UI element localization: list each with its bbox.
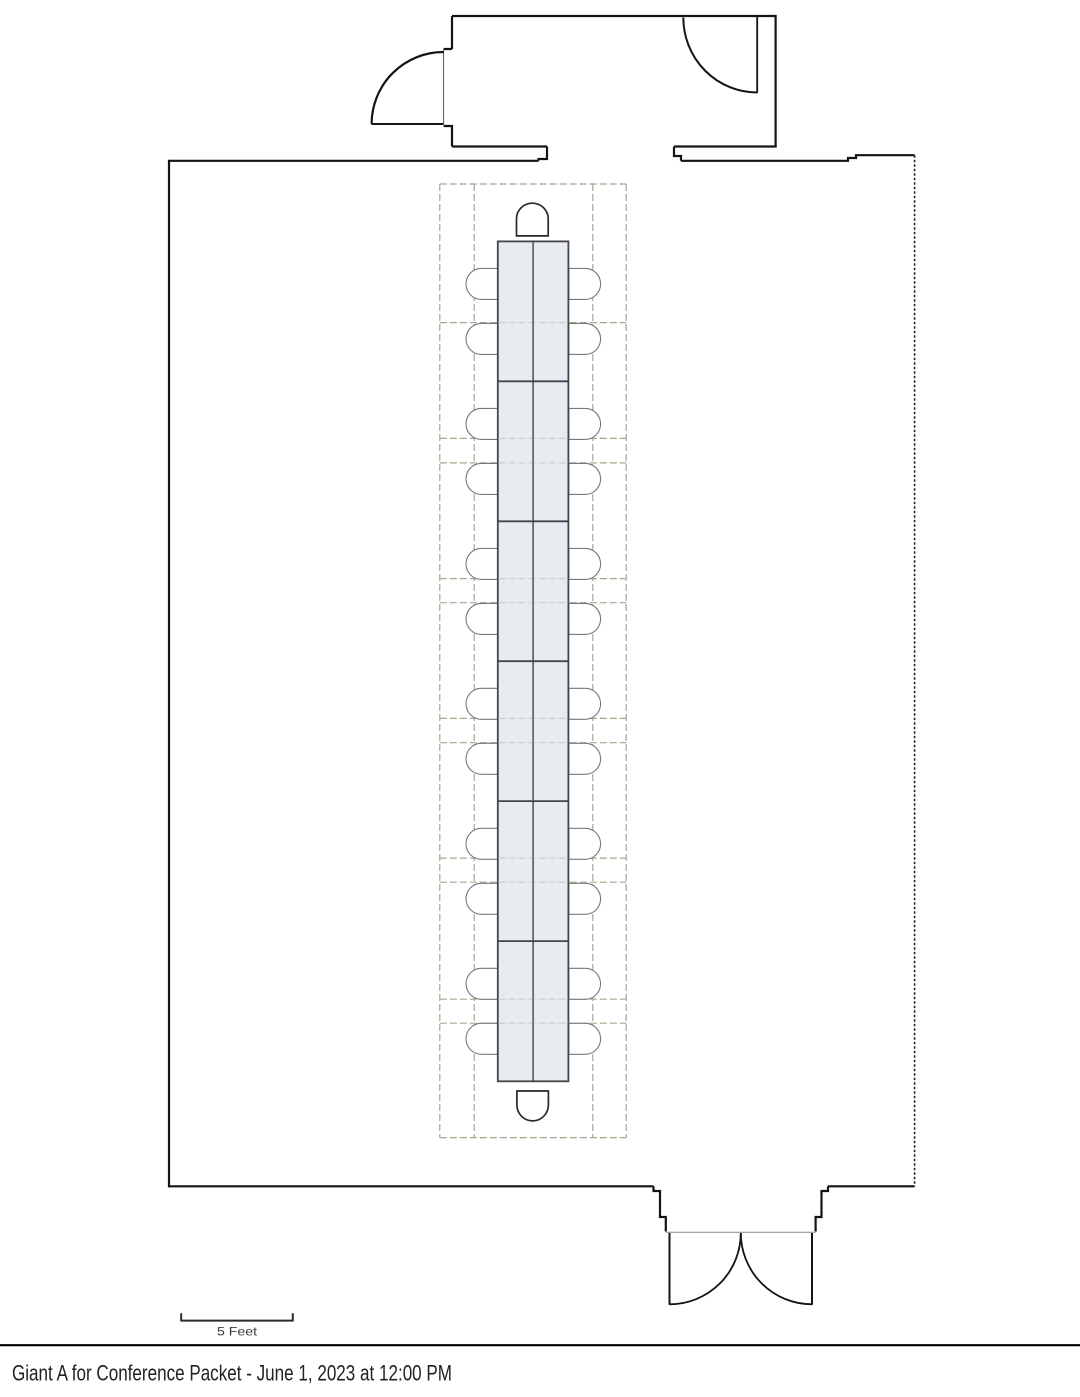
svg-text:Giant A for Conference Packet: Giant A for Conference Packet - June 1, … [12, 1361, 452, 1386]
svg-text:5 Feet: 5 Feet [217, 1327, 258, 1339]
